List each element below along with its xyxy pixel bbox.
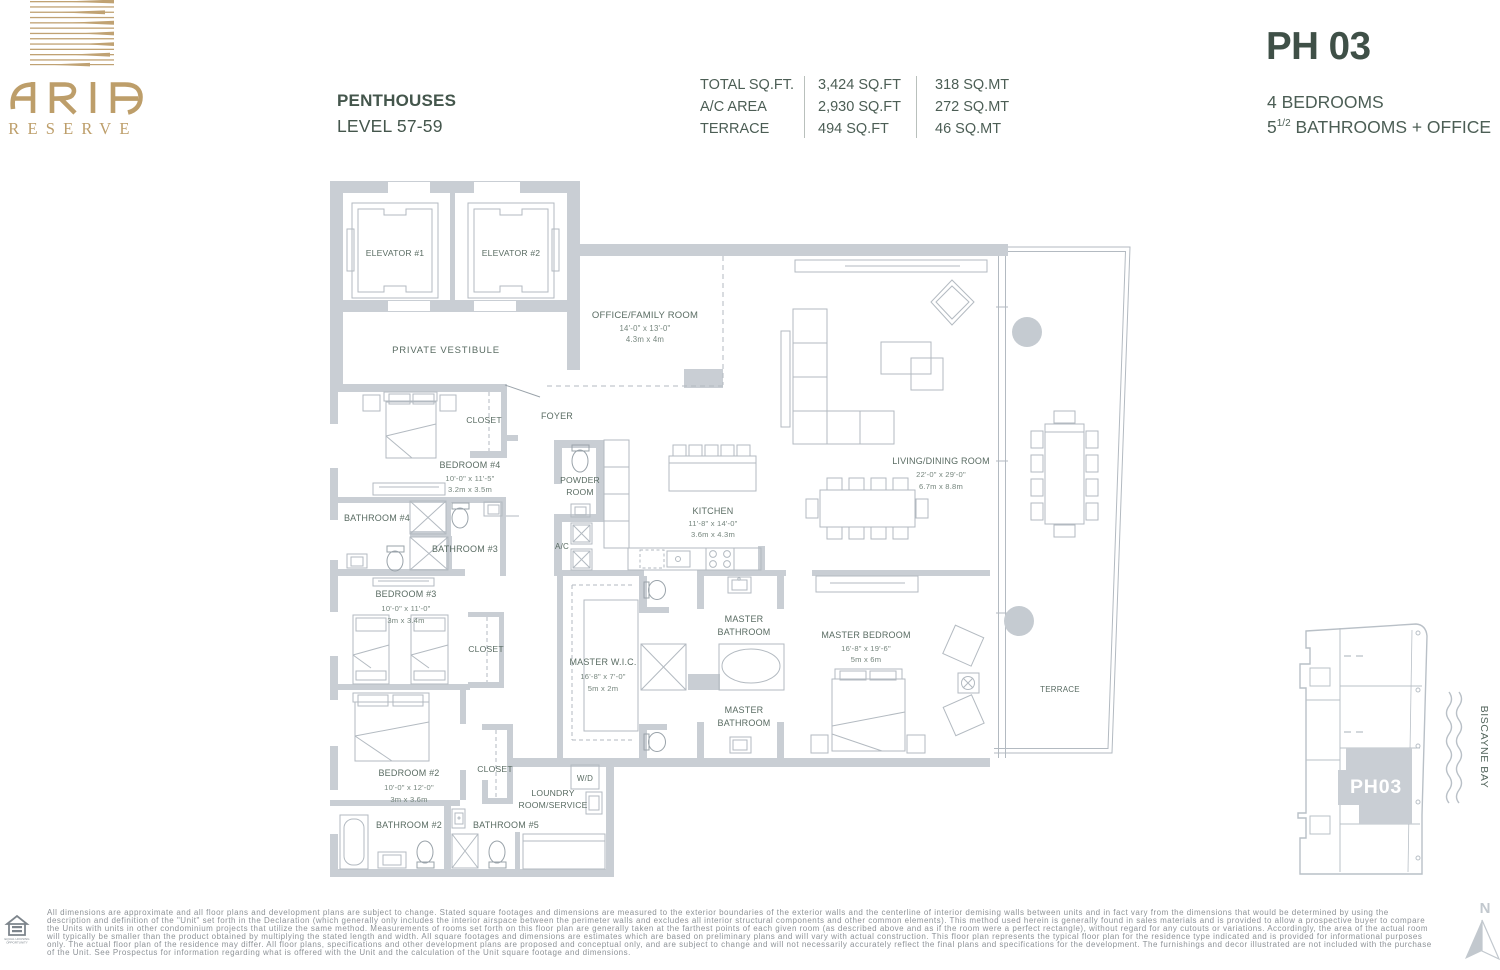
svg-text:MASTER W.I.C.: MASTER W.I.C. [569,657,636,667]
svg-text:OFFICE/FAMILY ROOM: OFFICE/FAMILY ROOM [592,310,698,321]
svg-text:ROOM: ROOM [566,487,594,497]
svg-text:16'-8" x 7'-0": 16'-8" x 7'-0" [580,672,625,681]
svg-text:LOUNDRY: LOUNDRY [531,788,574,798]
svg-text:LIVING/DINING ROOM: LIVING/DINING ROOM [892,456,990,466]
svg-text:ROOM/SERVICE: ROOM/SERVICE [518,800,587,810]
svg-text:MASTER BEDROOM: MASTER BEDROOM [821,630,910,640]
svg-text:CLOSET: CLOSET [477,764,513,774]
svg-text:BATHROOM #5: BATHROOM #5 [473,820,539,830]
svg-text:BATHROOM #4: BATHROOM #4 [344,513,410,523]
svg-text:N: N [1480,900,1491,917]
svg-text:BISCAYNE BAY: BISCAYNE BAY [1478,706,1490,789]
svg-text:CLOSET: CLOSET [468,644,504,654]
svg-text:CLOSET: CLOSET [466,415,502,425]
svg-text:BATHROOM: BATHROOM [718,627,771,637]
svg-text:3m x 3.4m: 3m x 3.4m [387,616,424,625]
svg-text:3.6m x 4.3m: 3.6m x 4.3m [691,530,735,539]
svg-text:BEDROOM #3: BEDROOM #3 [375,589,436,599]
svg-text:3m x 3.6m: 3m x 3.6m [390,795,427,804]
svg-text:6.7m x 8.8m: 6.7m x 8.8m [919,482,963,491]
svg-text:10'-0" x 11'-0": 10'-0" x 11'-0" [381,604,430,613]
svg-text:BATHROOM #2: BATHROOM #2 [376,820,442,830]
svg-text:BEDROOM #2: BEDROOM #2 [378,768,439,778]
svg-text:14'-0" x 13'-0": 14'-0" x 13'-0" [620,324,671,333]
svg-text:TERRACE: TERRACE [1040,685,1080,694]
svg-text:MASTER: MASTER [725,614,764,624]
svg-text:4.3m x 4m: 4.3m x 4m [626,335,664,344]
svg-text:POWDER: POWDER [560,475,600,485]
svg-text:W/D: W/D [577,774,593,783]
svg-text:BATHROOM: BATHROOM [718,718,771,728]
svg-text:ELEVATOR #2: ELEVATOR #2 [482,248,541,258]
svg-text:A/C: A/C [555,542,569,551]
svg-text:FOYER: FOYER [541,411,573,421]
svg-text:BEDROOM #4: BEDROOM #4 [439,460,500,470]
svg-text:10'-0" x 11'-5": 10'-0" x 11'-5" [445,474,494,483]
svg-text:5m x 6m: 5m x 6m [851,655,882,664]
svg-text:5m x 2m: 5m x 2m [588,684,619,693]
svg-text:BATHROOM #3: BATHROOM #3 [432,544,498,554]
svg-text:16'-8" x 19'-6": 16'-8" x 19'-6" [841,644,891,653]
svg-text:22'-0" x 29'-0": 22'-0" x 29'-0" [916,470,966,479]
svg-text:KITCHEN: KITCHEN [693,506,734,516]
svg-text:ELEVATOR #1: ELEVATOR #1 [366,248,425,258]
svg-text:10'-0" x 12'-0": 10'-0" x 12'-0" [384,783,434,792]
svg-text:OPPORTUNITY: OPPORTUNITY [6,940,28,944]
svg-text:3.2m x 3.5m: 3.2m x 3.5m [448,485,492,494]
svg-text:11'-8" x 14'-0": 11'-8" x 14'-0" [688,519,737,528]
svg-text:PH03: PH03 [1350,776,1402,798]
svg-text:PRIVATE VESTIBULE: PRIVATE VESTIBULE [392,345,500,356]
svg-text:MASTER: MASTER [725,705,764,715]
